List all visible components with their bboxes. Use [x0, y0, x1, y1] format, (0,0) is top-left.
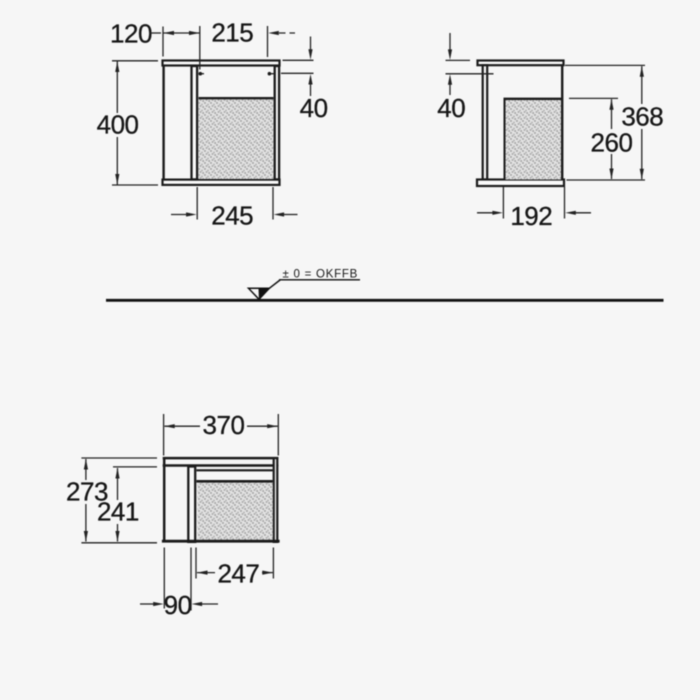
- svg-text:40: 40: [437, 93, 465, 123]
- svg-text:215: 215: [211, 17, 253, 47]
- svg-text:120: 120: [110, 19, 152, 49]
- svg-text:260: 260: [591, 128, 633, 158]
- svg-text:40: 40: [300, 93, 328, 123]
- svg-text:± 0 = OKFFB: ± 0 = OKFFB: [283, 269, 359, 281]
- svg-text:90: 90: [164, 590, 192, 620]
- svg-text:192: 192: [510, 201, 552, 231]
- svg-text:400: 400: [97, 110, 139, 140]
- svg-text:370: 370: [203, 410, 245, 440]
- svg-text:241: 241: [97, 497, 139, 527]
- svg-text:247: 247: [217, 559, 259, 589]
- svg-text:245: 245: [211, 201, 253, 231]
